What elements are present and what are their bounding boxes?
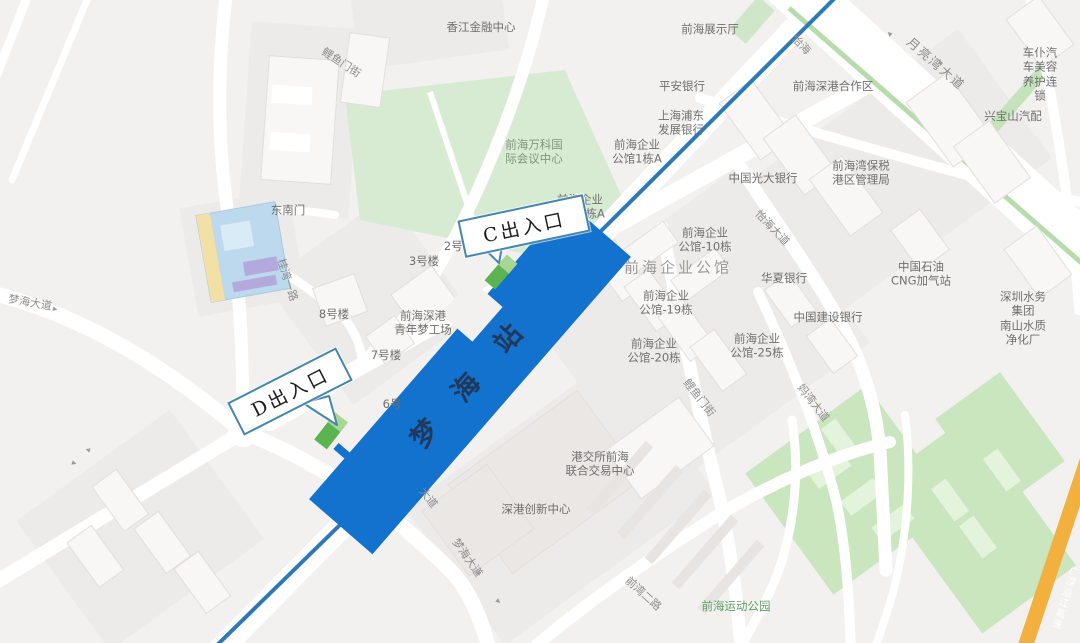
- road-direction-arrow: ▸: [84, 444, 91, 454]
- poi-qianhai-sports-park[interactable]: 前海运动公园: [702, 599, 771, 613]
- callout-exit-d[interactable]: D出入口: [227, 347, 353, 435]
- station-name-char-0[interactable]: 梦: [399, 409, 446, 455]
- poi-cnpc-cng-station[interactable]: 中国石油 CNG加气站: [891, 260, 951, 289]
- poi-southeast-gate[interactable]: 东南门: [271, 203, 306, 217]
- road-guiwan-1st: 桂湾一路: [274, 257, 301, 303]
- poi-xiangjiang-financial-center[interactable]: 香江金融中心: [447, 20, 516, 34]
- poi-gongguan-25[interactable]: 前海企业 公馆-25栋: [730, 332, 783, 361]
- poi-building-7[interactable]: 7号楼: [371, 348, 401, 362]
- poi-youth-dream-works[interactable]: 前海深港 青年梦工场: [394, 309, 452, 338]
- road-guangshen-riverside-expressway: 广深沿江高速: [1047, 564, 1079, 631]
- poi-gongguan-10[interactable]: 前海企业 公馆-10栋: [678, 226, 731, 255]
- poi-pingan-bank[interactable]: 平安银行: [659, 79, 705, 93]
- poi-spdb-bank[interactable]: 上海浦东 发展银行: [658, 109, 704, 138]
- road-menghai-blvd-w: 梦海大道: [7, 292, 53, 313]
- map-canvas[interactable]: 鲤鱼门街香江金融中心前海展示厅怡海月亮湾大道车仆汽车美容 养护连锁兴宝山汽配平安…: [0, 0, 1080, 643]
- poi-gongguan-20[interactable]: 前海企业 公馆-20栋: [627, 337, 680, 366]
- poi-qianhai-enterprise-mansion[interactable]: 前海企业公馆: [624, 259, 732, 278]
- poi-building-8[interactable]: 8号楼: [319, 307, 349, 321]
- poi-building-6[interactable]: 6号: [383, 397, 402, 411]
- road-direction-arrow: ▸: [493, 597, 502, 607]
- poi-qianhai-exhibition-hall[interactable]: 前海展示厅: [681, 22, 739, 36]
- road-yihai-blvd: 怡海大道: [752, 207, 792, 248]
- poi-chepu-auto-beauty[interactable]: 车仆汽车美容 养护连锁: [1020, 45, 1060, 103]
- road-direction-arrow: ▸: [70, 459, 77, 469]
- poi-ccb-bank[interactable]: 中国建设银行: [794, 310, 863, 324]
- labels-layer: 鲤鱼门街香江金融中心前海展示厅怡海月亮湾大道车仆汽车美容 养护连锁兴宝山汽配平安…: [0, 0, 1080, 643]
- station-name-char-1[interactable]: 海: [440, 363, 487, 409]
- road-yihai: 怡海: [788, 32, 813, 57]
- road-tinghai-blvd-fragment: 大道: [416, 485, 440, 511]
- poi-qianhai-shengang-cooperation-zone[interactable]: 前海深港合作区: [793, 79, 874, 93]
- poi-vanke-intl-conference-center[interactable]: 前海万科国 际会议中心: [505, 138, 563, 167]
- poi-building-3[interactable]: 3号楼: [409, 254, 439, 268]
- poi-shengang-innovation-center[interactable]: 深港创新中心: [502, 502, 571, 516]
- callout-exit-c[interactable]: C出入口: [457, 194, 590, 258]
- road-direction-arrow: ▸: [52, 305, 59, 315]
- poi-huaxia-bank[interactable]: 华夏银行: [761, 271, 807, 285]
- road-mawan-blvd: 妈湾大道: [794, 381, 832, 424]
- road-liyumen-street-e: 鲤鱼门街: [680, 376, 718, 419]
- road-liyumen-street-nw: 鲤鱼门街: [319, 45, 363, 80]
- station-name-char-2[interactable]: 站: [482, 314, 529, 360]
- poi-hkex-qianhai-center[interactable]: 港交所前海 联合交易中心: [566, 450, 635, 479]
- poi-gongguan-19[interactable]: 前海企业 公馆-19栋: [639, 289, 692, 318]
- poi-shenzhen-water-group[interactable]: 深圳水务集团 南山水质净化厂: [995, 289, 1052, 347]
- poi-bonded-port-authority[interactable]: 前海湾保税 港区管理局: [832, 159, 890, 188]
- road-qianwan-2nd: 前湾二路: [622, 574, 664, 614]
- road-direction-arrow: ▸: [885, 28, 895, 38]
- poi-gongguan-1a[interactable]: 前海企业 公馆1栋A: [612, 138, 662, 167]
- poi-xingbaoshan-auto-parts[interactable]: 兴宝山汽配: [984, 109, 1042, 123]
- poi-china-everbright-bank[interactable]: 中国光大银行: [729, 171, 798, 185]
